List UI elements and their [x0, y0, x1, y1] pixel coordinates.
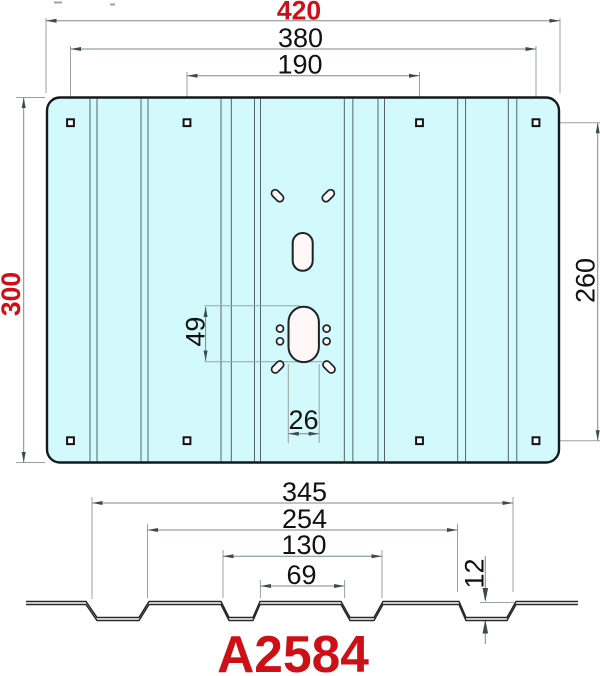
svg-text:A2584: A2584 — [217, 625, 369, 676]
svg-text:420: 420 — [277, 0, 321, 26]
svg-text:69: 69 — [286, 560, 316, 590]
svg-text:12: 12 — [460, 558, 490, 588]
svg-text:190: 190 — [277, 50, 322, 80]
svg-text:260: 260 — [571, 258, 600, 303]
svg-text:380: 380 — [278, 23, 323, 53]
svg-text:26: 26 — [288, 405, 318, 435]
svg-text:300: 300 — [0, 272, 26, 316]
svg-text:49: 49 — [181, 317, 211, 347]
svg-text:130: 130 — [281, 530, 326, 560]
svg-text:345: 345 — [282, 477, 327, 507]
